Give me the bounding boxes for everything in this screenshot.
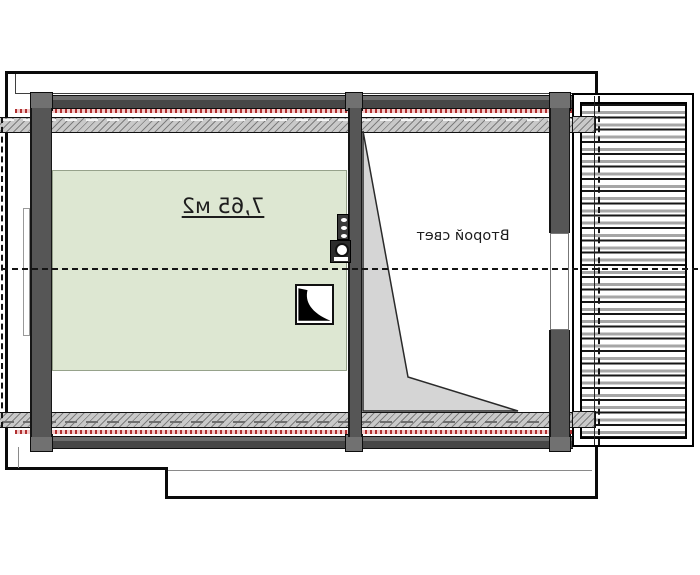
floor-plan-canvas: 7,65 м2 Второй свет xyxy=(0,0,700,575)
deck-eave-block-bottom xyxy=(572,411,596,428)
void-label: Второй свет xyxy=(393,228,533,244)
roof-edge-dashed-left xyxy=(1,117,3,428)
right-wall-lower xyxy=(549,330,570,437)
roof-hatch-wedge xyxy=(297,286,332,323)
middle-wall xyxy=(348,108,362,437)
deck-eave-block-top xyxy=(572,116,596,133)
roof-ridge-dashed-line xyxy=(2,268,698,270)
deck-planks xyxy=(580,102,687,439)
vent-stack-icon xyxy=(337,214,349,240)
building-edge-dashed-deck xyxy=(598,96,600,445)
left-wall xyxy=(30,108,52,437)
left-window xyxy=(23,208,30,336)
flue-circle xyxy=(335,243,349,257)
roof-hatch-icon xyxy=(295,284,334,325)
right-wall-upper xyxy=(549,108,570,233)
flue-slot xyxy=(334,257,348,261)
building-edge-through-deck xyxy=(594,96,595,445)
balcony-door xyxy=(550,233,569,330)
room-area-label: 7,65 м2 xyxy=(158,194,288,218)
chimney-flue-icon xyxy=(330,240,351,263)
